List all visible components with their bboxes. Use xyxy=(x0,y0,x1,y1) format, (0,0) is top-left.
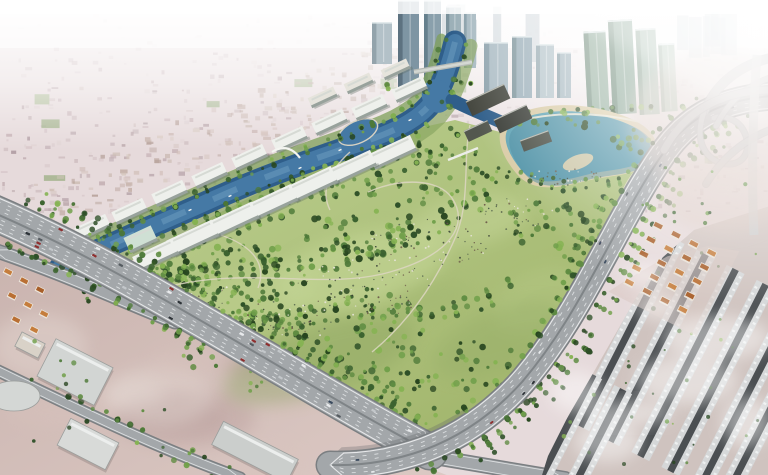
city-block xyxy=(34,184,38,186)
tree xyxy=(508,210,513,215)
tree xyxy=(360,298,365,303)
tree xyxy=(373,306,377,310)
tree xyxy=(570,272,576,278)
city-block xyxy=(149,174,154,177)
person xyxy=(282,334,283,335)
tree xyxy=(67,426,71,430)
tree xyxy=(172,231,177,236)
tree xyxy=(216,258,219,261)
tree xyxy=(211,270,215,274)
tree xyxy=(344,288,350,294)
tree xyxy=(505,440,510,445)
tree xyxy=(410,350,414,354)
tree xyxy=(505,417,508,420)
tree xyxy=(371,288,374,291)
tree xyxy=(323,247,328,252)
tree xyxy=(439,352,443,356)
tree xyxy=(428,461,434,467)
tree xyxy=(390,178,396,184)
tree xyxy=(386,292,393,299)
tree xyxy=(601,307,607,313)
tree xyxy=(494,181,498,185)
city-block xyxy=(179,172,185,176)
tree xyxy=(627,360,629,362)
tree xyxy=(119,230,125,236)
person xyxy=(522,221,523,222)
tree xyxy=(129,244,133,248)
tree xyxy=(113,242,119,248)
city-block xyxy=(80,174,82,178)
person xyxy=(367,312,369,314)
person xyxy=(329,279,330,280)
tree xyxy=(622,462,626,466)
person xyxy=(291,283,292,284)
tree xyxy=(403,242,409,248)
tree xyxy=(109,223,113,227)
tree xyxy=(430,386,436,392)
person xyxy=(400,297,402,299)
tree xyxy=(323,225,328,230)
person xyxy=(298,329,299,330)
person xyxy=(205,295,206,296)
tree xyxy=(402,408,408,414)
tree xyxy=(406,402,411,407)
tree xyxy=(412,387,417,392)
tree xyxy=(627,364,631,368)
tree xyxy=(128,303,133,308)
tree xyxy=(328,143,331,146)
city-block xyxy=(196,165,200,169)
city-block xyxy=(50,201,55,205)
person xyxy=(474,250,475,251)
city-block xyxy=(101,155,105,159)
person xyxy=(300,309,302,311)
tree xyxy=(245,294,250,299)
city-block xyxy=(218,154,221,156)
person xyxy=(337,267,338,268)
tree xyxy=(685,461,688,464)
person xyxy=(428,285,429,286)
tree xyxy=(448,126,453,131)
tree xyxy=(420,328,425,333)
fog-patch xyxy=(636,356,738,404)
tree xyxy=(89,227,95,233)
person xyxy=(218,307,219,308)
tree xyxy=(37,208,41,212)
person xyxy=(379,301,380,302)
tree xyxy=(450,203,454,207)
tree xyxy=(492,450,497,455)
tree xyxy=(274,297,279,302)
tree xyxy=(558,365,564,371)
tree xyxy=(269,246,276,253)
person xyxy=(278,313,280,315)
person xyxy=(408,240,409,241)
tree xyxy=(245,281,251,287)
tree xyxy=(547,374,552,379)
person xyxy=(294,304,296,306)
tree xyxy=(96,235,100,239)
city-block xyxy=(50,189,54,191)
tree xyxy=(149,264,155,270)
person xyxy=(329,305,330,306)
tree xyxy=(425,422,428,425)
person xyxy=(390,300,391,301)
tree xyxy=(364,178,370,184)
person xyxy=(496,204,498,206)
tree xyxy=(665,419,669,423)
city-block xyxy=(119,176,121,180)
person xyxy=(417,228,419,230)
tree xyxy=(398,186,401,189)
person xyxy=(382,277,384,279)
tree xyxy=(388,169,393,174)
tree xyxy=(82,211,88,217)
city-block xyxy=(163,179,167,183)
city-block xyxy=(76,186,79,190)
person xyxy=(415,256,416,257)
tree xyxy=(387,235,392,240)
tree xyxy=(693,444,695,446)
tree xyxy=(428,150,432,154)
tree xyxy=(391,382,396,387)
person xyxy=(468,258,469,259)
person xyxy=(441,260,442,261)
tree xyxy=(537,332,543,338)
tree xyxy=(247,226,252,231)
tree xyxy=(588,332,594,338)
tree xyxy=(327,296,332,301)
tree xyxy=(316,215,321,220)
tree xyxy=(286,268,290,272)
tree xyxy=(106,226,111,231)
tree xyxy=(372,192,377,197)
tree xyxy=(394,303,401,310)
tree xyxy=(239,291,244,296)
tree xyxy=(374,209,379,214)
tree xyxy=(438,207,445,214)
tree xyxy=(278,257,283,262)
person xyxy=(465,228,467,230)
person xyxy=(408,237,409,238)
tree xyxy=(427,92,430,95)
tree xyxy=(296,320,302,326)
person xyxy=(395,274,397,276)
tree xyxy=(360,249,364,253)
city-block xyxy=(107,199,114,201)
tree xyxy=(434,59,438,63)
tree xyxy=(608,311,612,315)
tree xyxy=(140,427,145,432)
person xyxy=(335,280,336,281)
tree xyxy=(137,260,140,263)
tree xyxy=(246,319,251,324)
city-block xyxy=(185,182,190,185)
person xyxy=(400,295,401,296)
tree xyxy=(29,255,34,260)
person xyxy=(273,326,275,328)
tree xyxy=(426,159,433,166)
tree xyxy=(664,349,666,351)
tree xyxy=(396,345,399,348)
tree xyxy=(574,358,579,363)
tree xyxy=(395,202,401,208)
person xyxy=(371,306,373,308)
person xyxy=(405,285,406,286)
tree xyxy=(343,232,347,236)
person xyxy=(351,271,353,273)
tree xyxy=(427,236,431,240)
tree xyxy=(461,295,467,301)
tree xyxy=(64,382,68,386)
person xyxy=(471,246,472,247)
tree xyxy=(199,345,205,351)
tree xyxy=(323,354,328,359)
person xyxy=(352,285,354,287)
tree xyxy=(230,295,234,299)
tree xyxy=(30,378,34,382)
ground-patch xyxy=(103,380,165,408)
tree xyxy=(339,291,343,295)
tree xyxy=(486,442,492,448)
person xyxy=(352,314,354,316)
tree xyxy=(333,266,339,272)
tree xyxy=(186,284,191,289)
tree xyxy=(352,216,358,222)
tree xyxy=(500,434,505,439)
tree xyxy=(518,409,522,413)
tree xyxy=(416,241,420,245)
tree xyxy=(519,353,525,359)
tree xyxy=(301,172,305,176)
tree xyxy=(442,315,447,320)
tree xyxy=(410,104,413,107)
tree xyxy=(471,378,477,384)
tree xyxy=(427,169,433,175)
tree xyxy=(67,208,72,213)
tree xyxy=(342,375,347,380)
tree xyxy=(192,219,198,225)
tree xyxy=(400,345,405,350)
city-block xyxy=(198,162,203,164)
person xyxy=(448,231,450,233)
person xyxy=(411,304,412,305)
tree xyxy=(614,298,618,302)
tree xyxy=(249,381,253,385)
tree xyxy=(345,244,350,249)
tree xyxy=(495,170,498,173)
city-block xyxy=(12,190,15,192)
tree xyxy=(318,362,323,367)
tree xyxy=(260,381,263,384)
tree xyxy=(442,455,447,460)
tree xyxy=(392,320,396,324)
tree xyxy=(382,120,386,124)
tree xyxy=(278,303,284,309)
tree xyxy=(672,423,674,425)
tree xyxy=(209,354,215,360)
city-block xyxy=(2,187,5,191)
city-block xyxy=(127,192,132,195)
person xyxy=(263,309,264,310)
person xyxy=(457,237,458,238)
tree xyxy=(62,373,66,377)
tree xyxy=(159,233,165,239)
tree xyxy=(182,264,187,269)
tree xyxy=(399,371,403,375)
tree xyxy=(141,309,145,313)
person xyxy=(291,326,293,328)
city-block xyxy=(80,167,86,171)
person xyxy=(242,319,243,320)
city-block xyxy=(113,153,121,157)
tree xyxy=(115,418,119,422)
tree xyxy=(326,137,330,141)
city-block xyxy=(72,179,75,184)
tree xyxy=(562,434,567,439)
tree xyxy=(267,314,271,318)
tree xyxy=(53,268,58,273)
tree xyxy=(249,298,253,302)
tree xyxy=(415,467,419,471)
person xyxy=(464,241,465,242)
tree xyxy=(24,202,28,206)
aerial-render-canvas xyxy=(0,0,768,475)
person xyxy=(401,303,403,305)
tree xyxy=(188,452,192,456)
tree xyxy=(297,312,303,318)
tree xyxy=(368,384,374,390)
tree xyxy=(471,180,476,185)
tree xyxy=(434,71,437,74)
tree xyxy=(396,217,399,220)
person xyxy=(398,313,399,314)
tree xyxy=(420,379,425,384)
tree xyxy=(543,390,549,396)
tree xyxy=(362,131,365,134)
tree xyxy=(214,244,221,251)
tree xyxy=(90,287,95,292)
tree xyxy=(414,131,418,135)
tree xyxy=(382,389,387,394)
tree xyxy=(370,231,375,236)
tree xyxy=(191,449,195,453)
tree xyxy=(440,305,445,310)
tree xyxy=(176,329,182,335)
tree xyxy=(479,344,486,351)
person xyxy=(319,331,320,332)
tree xyxy=(352,241,356,245)
city-block xyxy=(160,171,163,176)
tree xyxy=(311,166,315,170)
tree xyxy=(212,292,216,296)
tree xyxy=(266,254,270,258)
tree xyxy=(361,379,367,385)
person xyxy=(373,279,374,280)
tree xyxy=(283,342,287,346)
person xyxy=(258,303,260,305)
tree xyxy=(355,250,360,255)
person xyxy=(422,275,423,276)
tree xyxy=(190,336,194,340)
tree xyxy=(562,254,567,259)
tree xyxy=(202,455,207,460)
person xyxy=(391,305,392,306)
tree xyxy=(368,367,375,374)
person xyxy=(371,238,373,240)
person xyxy=(407,300,409,302)
tree xyxy=(506,366,510,370)
tree xyxy=(63,220,67,224)
tree xyxy=(173,205,177,209)
tree xyxy=(161,206,167,212)
tree xyxy=(306,357,309,360)
tree xyxy=(190,364,196,370)
tree xyxy=(566,353,570,357)
city-block xyxy=(45,164,50,167)
person xyxy=(428,246,430,248)
tree xyxy=(453,92,456,95)
fog-patch xyxy=(550,372,602,412)
tree xyxy=(514,220,519,225)
tree xyxy=(129,423,132,426)
person xyxy=(374,238,376,240)
person xyxy=(388,240,389,241)
person xyxy=(324,328,326,330)
city-block xyxy=(168,160,172,163)
fog-patch xyxy=(574,420,640,462)
tree xyxy=(291,179,294,182)
tree xyxy=(359,313,364,318)
tree xyxy=(514,229,519,234)
person xyxy=(467,231,469,233)
tower xyxy=(372,22,392,64)
tree xyxy=(155,267,158,270)
tree xyxy=(406,301,411,306)
tree xyxy=(631,344,635,348)
tree xyxy=(513,426,517,430)
person xyxy=(333,267,335,269)
person xyxy=(400,246,402,248)
tree xyxy=(270,336,274,340)
person xyxy=(344,297,345,298)
tree xyxy=(401,133,404,136)
tree xyxy=(245,192,249,196)
tree xyxy=(350,134,356,140)
tree xyxy=(328,284,332,288)
tree xyxy=(325,217,332,224)
tree xyxy=(135,440,140,445)
tree xyxy=(440,100,445,105)
city-block xyxy=(95,202,102,205)
person xyxy=(454,226,455,227)
tree xyxy=(334,240,339,245)
tree xyxy=(114,301,119,306)
tree xyxy=(455,189,459,193)
tree xyxy=(432,406,437,411)
person xyxy=(304,311,306,313)
tree xyxy=(335,318,340,323)
person xyxy=(380,235,381,236)
tree xyxy=(278,213,284,219)
person xyxy=(330,293,332,295)
tree xyxy=(78,394,83,399)
person xyxy=(362,286,363,287)
person xyxy=(477,249,478,250)
city-block xyxy=(109,203,113,207)
city-block xyxy=(59,157,66,159)
tree xyxy=(258,326,264,332)
